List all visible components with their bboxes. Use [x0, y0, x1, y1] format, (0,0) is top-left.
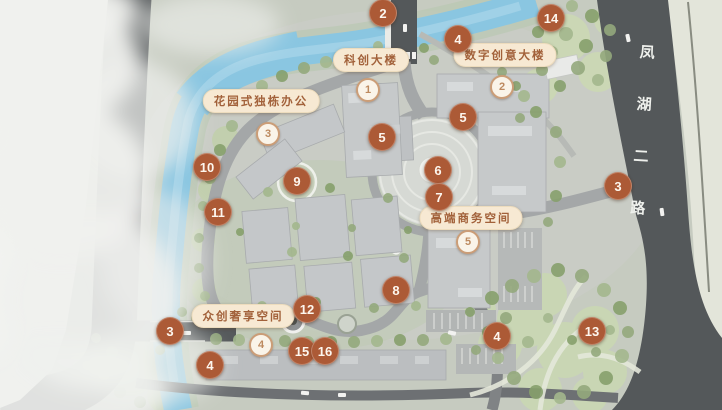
map-marker[interactable]: 14	[537, 4, 565, 32]
map-marker[interactable]: 8	[382, 276, 410, 304]
area-label: 科创大楼	[333, 48, 409, 72]
map-marker[interactable]: 7	[425, 183, 453, 211]
site-plan-map: 科创大楼数字创意大楼花园式独栋办公高端商务空间众创奢享空间 2144125351…	[0, 0, 722, 410]
map-marker[interactable]: 1	[356, 78, 380, 102]
map-marker[interactable]: 5	[368, 123, 396, 151]
map-marker[interactable]: 9	[283, 167, 311, 195]
map-marker[interactable]: 5	[449, 103, 477, 131]
map-marker[interactable]: 13	[578, 317, 606, 345]
map-marker[interactable]: 3	[156, 317, 184, 345]
area-label: 花园式独栋办公	[203, 89, 320, 113]
map-marker[interactable]: 4	[196, 351, 224, 379]
map-marker[interactable]: 11	[204, 198, 232, 226]
map-marker[interactable]: 5	[456, 230, 480, 254]
map-marker[interactable]: 4	[249, 333, 273, 357]
map-marker[interactable]: 6	[424, 156, 452, 184]
map-marker[interactable]: 4	[444, 25, 472, 53]
map-marker[interactable]: 2	[490, 75, 514, 99]
map-marker[interactable]: 2	[369, 0, 397, 27]
map-marker[interactable]: 3	[256, 122, 280, 146]
map-marker[interactable]: 12	[293, 295, 321, 323]
map-marker[interactable]: 10	[193, 153, 221, 181]
area-label: 众创奢享空间	[192, 304, 295, 328]
map-marker[interactable]: 4	[483, 322, 511, 350]
map-marker[interactable]: 16	[311, 337, 339, 365]
